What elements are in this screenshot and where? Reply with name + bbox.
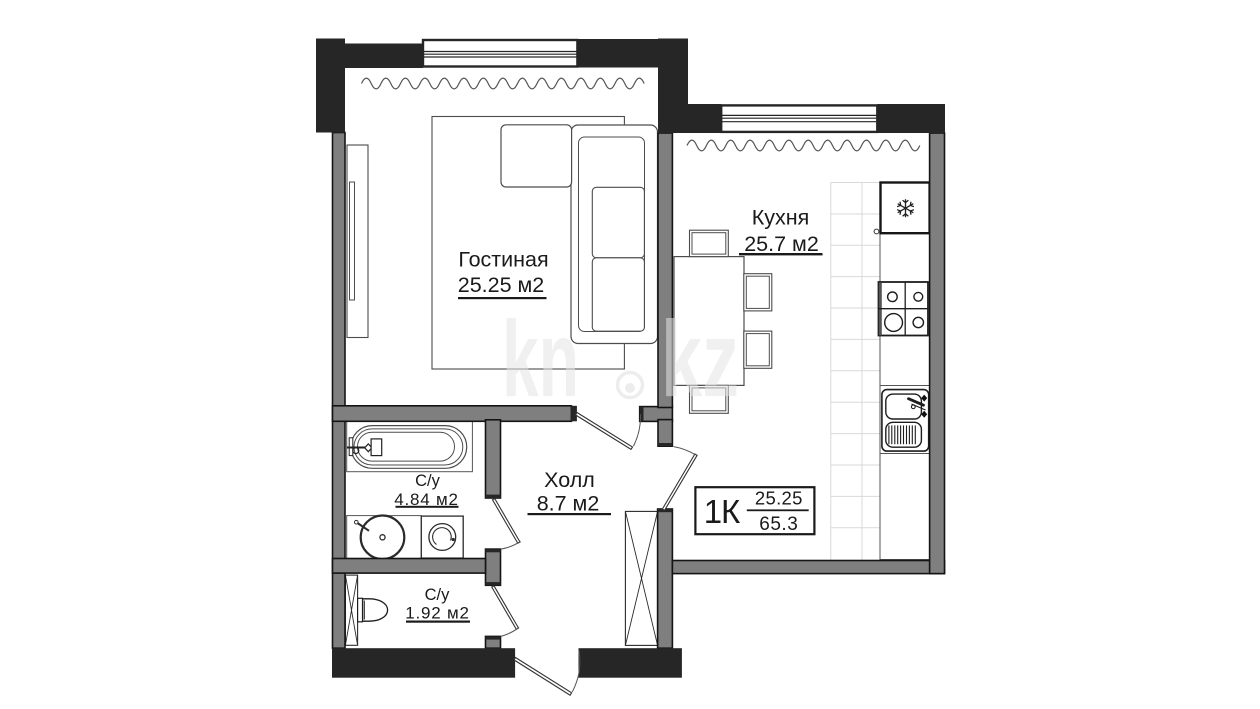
svg-text:С/у: С/у <box>415 472 441 490</box>
svg-text:1К: 1К <box>704 493 741 530</box>
svg-text:kz: kz <box>661 298 739 419</box>
svg-text:25.25 м2: 25.25 м2 <box>458 273 545 297</box>
svg-text:Холл: Холл <box>544 468 595 492</box>
svg-text:25.25: 25.25 <box>755 488 803 509</box>
svg-text:kn: kn <box>502 298 579 419</box>
svg-text:1.92 м2: 1.92 м2 <box>405 604 470 623</box>
svg-text:Гостиная: Гостиная <box>458 248 548 272</box>
svg-text:С/у: С/у <box>425 586 451 604</box>
svg-text:8.7 м2: 8.7 м2 <box>537 492 600 516</box>
svg-text:25.7 м2: 25.7 м2 <box>744 232 819 256</box>
svg-text:65.3: 65.3 <box>759 514 798 535</box>
svg-text:Кухня: Кухня <box>752 206 810 230</box>
